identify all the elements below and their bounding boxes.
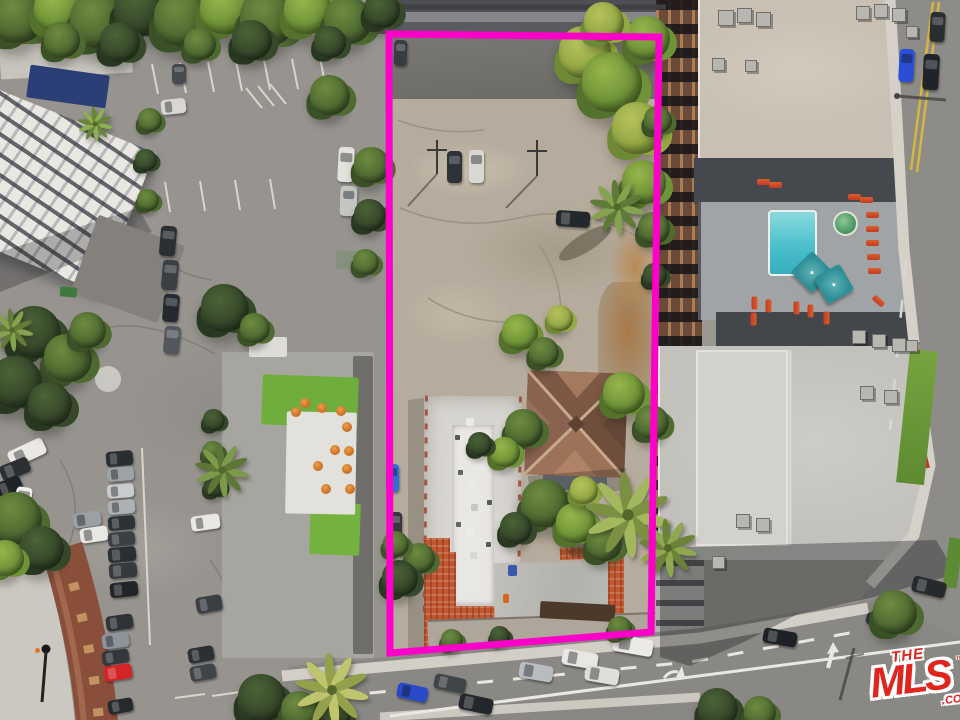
mls-logo-trademark: ™ (955, 654, 960, 664)
property-boundary (389, 34, 659, 653)
mls-logo-com: .COM (941, 692, 960, 707)
mls-logo: THE MLS ™ .COM (866, 640, 960, 717)
boundary-overlay (0, 0, 960, 720)
aerial-photo-scene: THE MLS ™ .COM (0, 0, 960, 720)
mls-logo-mls: MLS (868, 653, 952, 704)
